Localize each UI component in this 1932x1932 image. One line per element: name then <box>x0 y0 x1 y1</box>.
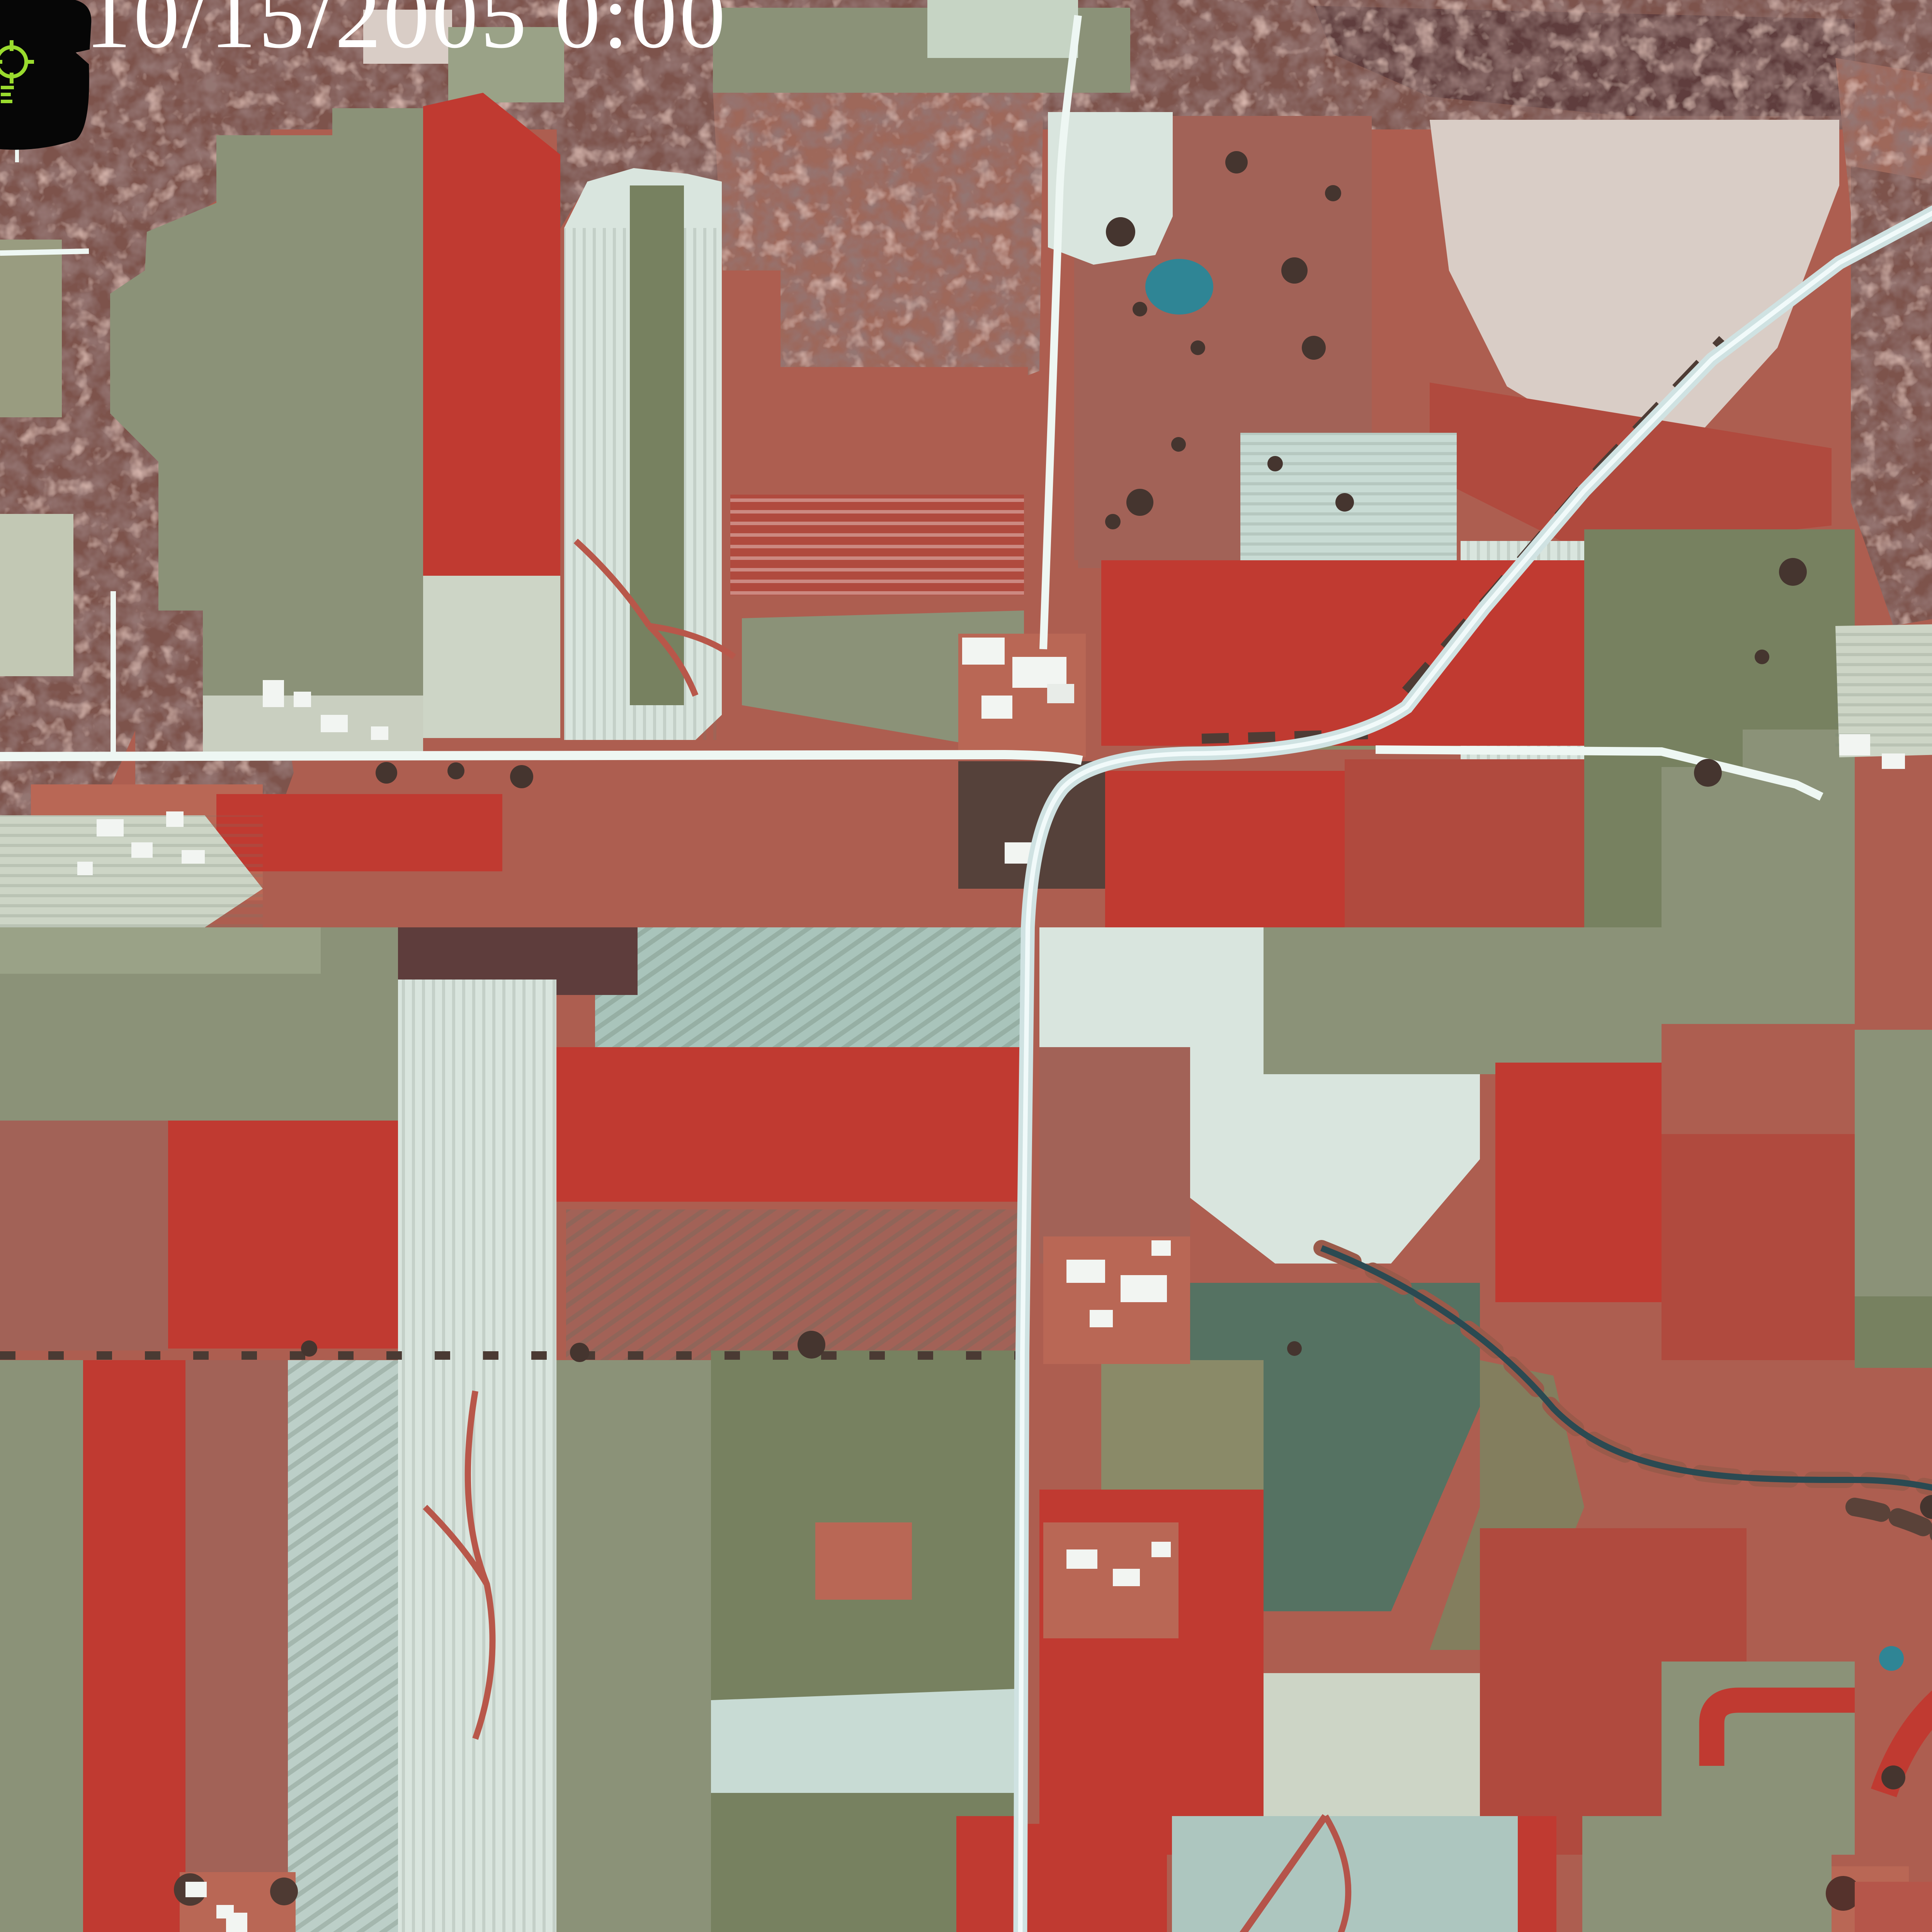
svg-text:10/15/2005 0:00: 10/15/2005 0:00 <box>85 0 728 67</box>
